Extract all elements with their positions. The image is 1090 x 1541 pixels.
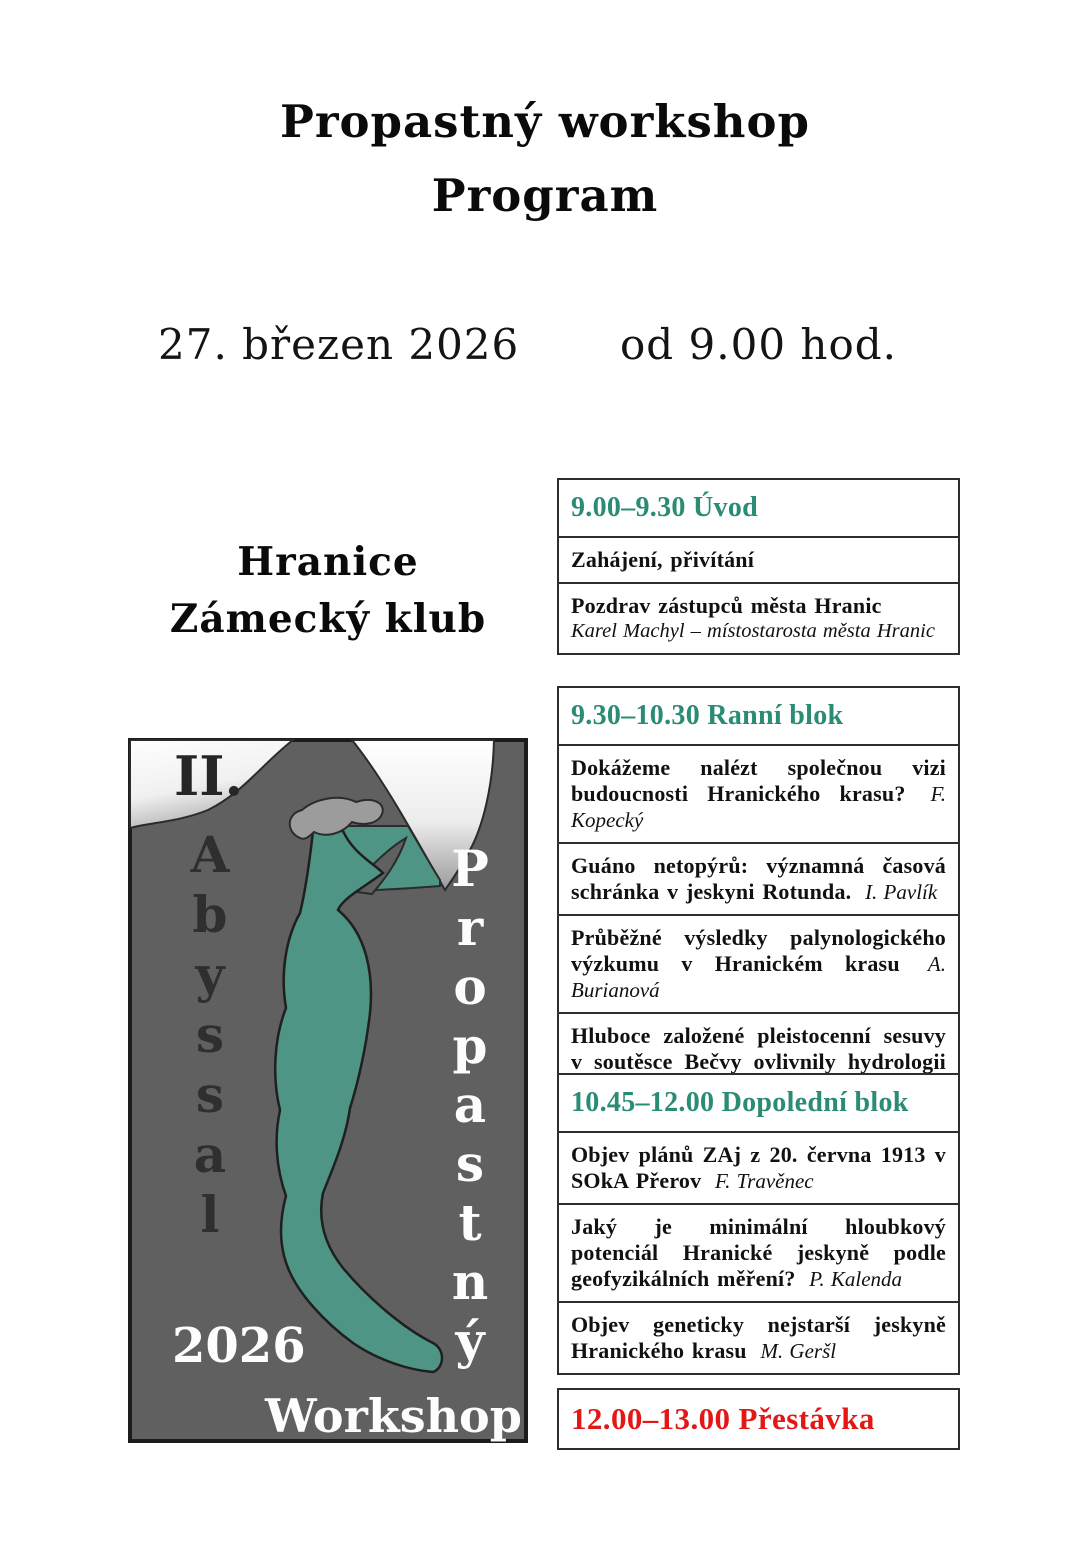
page-subtitle: Program xyxy=(0,170,1090,222)
talk-author: M. Geršl xyxy=(760,1339,836,1363)
talk-title: Objev geneticky nejstarší jeskyně Hranic… xyxy=(571,1312,946,1363)
talk-author: I. Pavlík xyxy=(865,880,937,904)
schedule-block-dopoledni: 10.45–12.00 Dopolední blok Objev plánů Z… xyxy=(557,1073,960,1375)
table-row: Zahájení, přivítání xyxy=(559,536,958,582)
program-page: { "document": { "title": "Propastný work… xyxy=(0,0,1090,1541)
break-heading: 12.00–13.00 Přestávka xyxy=(559,1390,958,1448)
table-row: Objev plánů ZAj z 20. června 1913 v SOkA… xyxy=(559,1131,958,1203)
venue: Hranice Zámecký klub xyxy=(128,534,528,648)
page-title: Propastný workshop xyxy=(0,96,1090,148)
venue-place: Zámecký klub xyxy=(128,591,528,648)
logo-year: 2026 xyxy=(172,1318,306,1374)
venue-city: Hranice xyxy=(128,534,528,591)
talk-author: P. Kalenda xyxy=(809,1267,902,1291)
table-row: Dokážeme nalézt společnou vizi budoucnos… xyxy=(559,744,958,842)
schedule-block-ranni: 9.30–10.30 Ranní blok Dokážeme nalézt sp… xyxy=(557,686,960,1112)
logo-edition: II. xyxy=(174,744,243,808)
talk-author: F. Travěnec xyxy=(715,1169,814,1193)
logo-caption: Workshop xyxy=(264,1389,522,1443)
event-date: 27. březen 2026 xyxy=(158,320,519,369)
table-row: Jaký je minimální hloubkový potenciál Hr… xyxy=(559,1203,958,1301)
block-heading: 9.30–10.30 Ranní blok xyxy=(559,688,958,744)
table-row: Průběžné výsledky palynologického výzkum… xyxy=(559,914,958,1012)
talk-title: Zahájení, přivítání xyxy=(571,547,754,572)
table-row: Pozdrav zástupců města Hranic Karel Mach… xyxy=(559,582,958,653)
workshop-logo: II. Abyssal Propastný 2026 Workshop xyxy=(128,738,528,1443)
talk-title: Dokážeme nalézt společnou vizi budoucnos… xyxy=(571,755,946,806)
talk-title: Průběžné výsledky palynologického výzkum… xyxy=(571,925,946,976)
talk-author: Karel Machyl – místostarosta města Hrani… xyxy=(571,619,946,644)
table-row: Objev geneticky nejstarší jeskyně Hranic… xyxy=(559,1301,958,1373)
logo-vertical-propastny: Propastný xyxy=(451,839,489,1370)
schedule-block-prestavka: 12.00–13.00 Přestávka xyxy=(557,1388,960,1450)
talk-title: Pozdrav zástupců města Hranic xyxy=(571,593,882,618)
abyss-logo-graphic: II. Abyssal Propastný 2026 Workshop xyxy=(128,738,528,1443)
schedule-block-uvod: 9.00–9.30 Úvod Zahájení, přivítání Pozdr… xyxy=(557,478,960,655)
table-row: Guáno netopýrů: významná časová schránka… xyxy=(559,842,958,914)
event-time: od 9.00 hod. xyxy=(620,320,897,369)
block-heading: 9.00–9.30 Úvod xyxy=(559,480,958,536)
block-heading: 10.45–12.00 Dopolední blok xyxy=(559,1075,958,1131)
